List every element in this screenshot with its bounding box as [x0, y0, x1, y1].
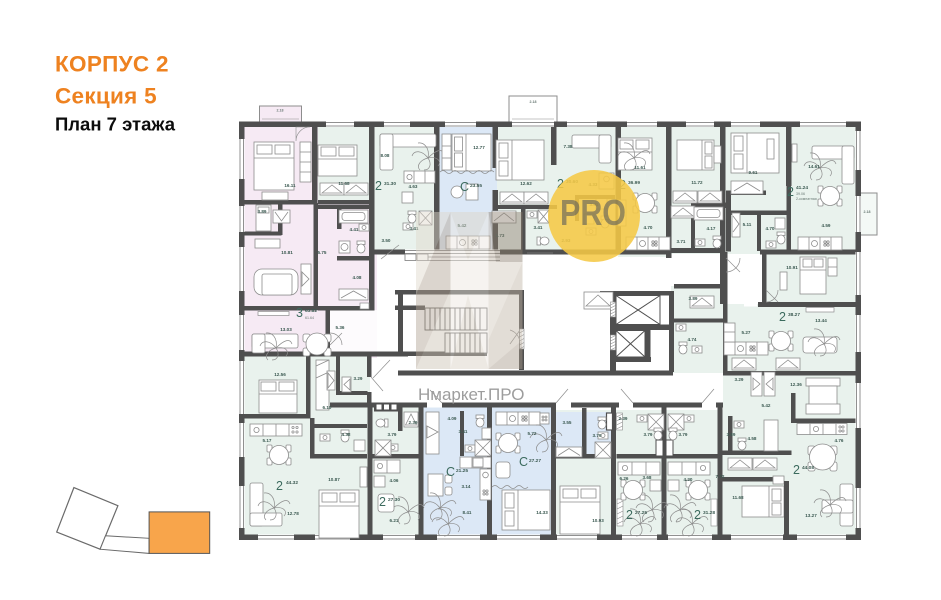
svg-text:63.82: 63.82 — [305, 308, 317, 314]
svg-text:7.38: 7.38 — [564, 144, 573, 149]
svg-text:11.68: 11.68 — [732, 495, 744, 500]
svg-text:5.11: 5.11 — [743, 222, 752, 227]
svg-text:4.38: 4.38 — [342, 432, 351, 437]
svg-text:2: 2 — [276, 479, 283, 493]
svg-text:12.77: 12.77 — [473, 145, 485, 150]
svg-text:3.41: 3.41 — [534, 225, 543, 230]
svg-text:4.20: 4.20 — [684, 477, 693, 482]
svg-text:3.41: 3.41 — [459, 429, 468, 434]
svg-text:27.25: 27.25 — [635, 510, 647, 516]
svg-text:12.56: 12.56 — [274, 372, 286, 377]
svg-text:27.30: 27.30 — [388, 497, 400, 503]
svg-text:2.18: 2.18 — [864, 210, 871, 214]
svg-text:3.89: 3.89 — [258, 209, 267, 214]
svg-text:16.11: 16.11 — [284, 183, 296, 188]
svg-text:PRO: PRO — [560, 192, 626, 233]
svg-text:КОРПУС 2: КОРПУС 2 — [55, 52, 169, 77]
svg-text:3.71: 3.71 — [677, 239, 686, 244]
svg-text:4.59: 4.59 — [822, 223, 831, 228]
svg-text:9.61: 9.61 — [749, 170, 758, 175]
svg-text:13.03: 13.03 — [280, 327, 292, 332]
svg-text:2: 2 — [379, 495, 386, 509]
svg-text:3.50: 3.50 — [382, 238, 391, 243]
svg-text:31.28: 31.28 — [703, 510, 715, 516]
svg-text:3.79: 3.79 — [388, 432, 397, 437]
svg-text:44.32: 44.32 — [286, 480, 298, 486]
svg-text:2: 2 — [779, 310, 786, 324]
svg-text:11.68: 11.68 — [338, 181, 350, 186]
svg-text:С: С — [519, 455, 528, 469]
svg-text:61.64: 61.64 — [305, 316, 314, 320]
svg-text:5.36: 5.36 — [336, 325, 345, 330]
svg-text:39.06: 39.06 — [796, 192, 805, 196]
svg-text:2: 2 — [375, 179, 382, 193]
svg-text:4.09: 4.09 — [448, 416, 457, 421]
svg-text:5.17: 5.17 — [263, 438, 272, 443]
svg-text:3.79: 3.79 — [644, 432, 653, 437]
svg-text:5.75: 5.75 — [318, 250, 327, 255]
svg-text:2: 2 — [793, 463, 800, 477]
svg-text:План 7 этажа: План 7 этажа — [55, 114, 176, 135]
svg-text:10.91: 10.91 — [786, 265, 798, 270]
svg-text:12.62: 12.62 — [520, 181, 532, 186]
svg-text:4.41: 4.41 — [350, 227, 359, 232]
svg-text:Секция 5: Секция 5 — [55, 84, 157, 109]
svg-text:3.29: 3.29 — [354, 376, 363, 381]
svg-text:13.27: 13.27 — [805, 513, 817, 518]
svg-text:3.79: 3.79 — [593, 433, 602, 438]
svg-text:21.25: 21.25 — [456, 468, 468, 474]
svg-text:27.27: 27.27 — [529, 458, 541, 464]
svg-text:38.27: 38.27 — [788, 312, 800, 318]
svg-text:2.39: 2.39 — [619, 416, 628, 421]
svg-text:4.70: 4.70 — [644, 225, 653, 230]
svg-text:2.18: 2.18 — [277, 109, 284, 113]
svg-text:С: С — [446, 465, 455, 479]
svg-text:5.27: 5.27 — [742, 330, 751, 335]
svg-text:12.78: 12.78 — [287, 511, 299, 516]
svg-text:4.70: 4.70 — [766, 226, 775, 231]
svg-text:4.17: 4.17 — [707, 226, 716, 231]
svg-text:2.39: 2.39 — [409, 420, 418, 425]
svg-text:4.74: 4.74 — [688, 337, 697, 342]
svg-text:41.24: 41.24 — [796, 185, 808, 191]
svg-text:14.61: 14.61 — [808, 164, 820, 169]
svg-text:2-комнатная: 2-комнатная — [796, 197, 817, 201]
svg-text:6.26: 6.26 — [620, 476, 629, 481]
svg-text:3.89: 3.89 — [727, 432, 736, 437]
svg-text:44.08: 44.08 — [802, 465, 814, 471]
svg-text:11.61: 11.61 — [634, 165, 646, 170]
svg-text:3.55: 3.55 — [563, 420, 572, 425]
svg-text:4.63: 4.63 — [409, 184, 418, 189]
svg-text:3.29: 3.29 — [735, 377, 744, 382]
svg-text:36.99: 36.99 — [628, 180, 640, 186]
svg-text:2: 2 — [626, 508, 633, 522]
svg-text:4.06: 4.06 — [390, 478, 399, 483]
svg-text:3.14: 3.14 — [462, 484, 471, 489]
svg-text:31.30: 31.30 — [384, 181, 396, 187]
svg-text:2: 2 — [694, 508, 701, 522]
svg-text:5.72: 5.72 — [528, 431, 537, 436]
svg-text:3: 3 — [296, 306, 303, 320]
svg-text:13.44: 13.44 — [815, 318, 827, 323]
svg-text:23.55: 23.55 — [470, 183, 482, 189]
svg-text:6.21: 6.21 — [390, 518, 399, 523]
svg-text:10.93: 10.93 — [592, 518, 604, 523]
svg-text:10.81: 10.81 — [281, 250, 293, 255]
svg-text:12.36: 12.36 — [790, 382, 802, 387]
svg-text:5.42: 5.42 — [762, 403, 771, 408]
svg-text:3.79: 3.79 — [679, 432, 688, 437]
svg-text:2: 2 — [787, 185, 794, 199]
svg-text:7.72: 7.72 — [716, 474, 725, 479]
svg-text:4.58: 4.58 — [748, 436, 757, 441]
svg-text:6.10: 6.10 — [323, 405, 332, 410]
svg-text:8.08: 8.08 — [381, 153, 390, 158]
svg-text:Нмаркет.ПРО: Нмаркет.ПРО — [418, 385, 524, 404]
svg-text:3.89: 3.89 — [689, 296, 698, 301]
svg-text:4.76: 4.76 — [835, 438, 844, 443]
svg-text:4.08: 4.08 — [353, 275, 362, 280]
svg-text:С: С — [460, 180, 469, 194]
svg-text:11.72: 11.72 — [691, 180, 703, 185]
svg-text:2.18: 2.18 — [530, 100, 537, 104]
svg-text:14.33: 14.33 — [536, 510, 548, 515]
svg-text:3.68: 3.68 — [643, 475, 652, 480]
svg-text:10.87: 10.87 — [328, 477, 340, 482]
svg-text:8.41: 8.41 — [463, 510, 472, 515]
